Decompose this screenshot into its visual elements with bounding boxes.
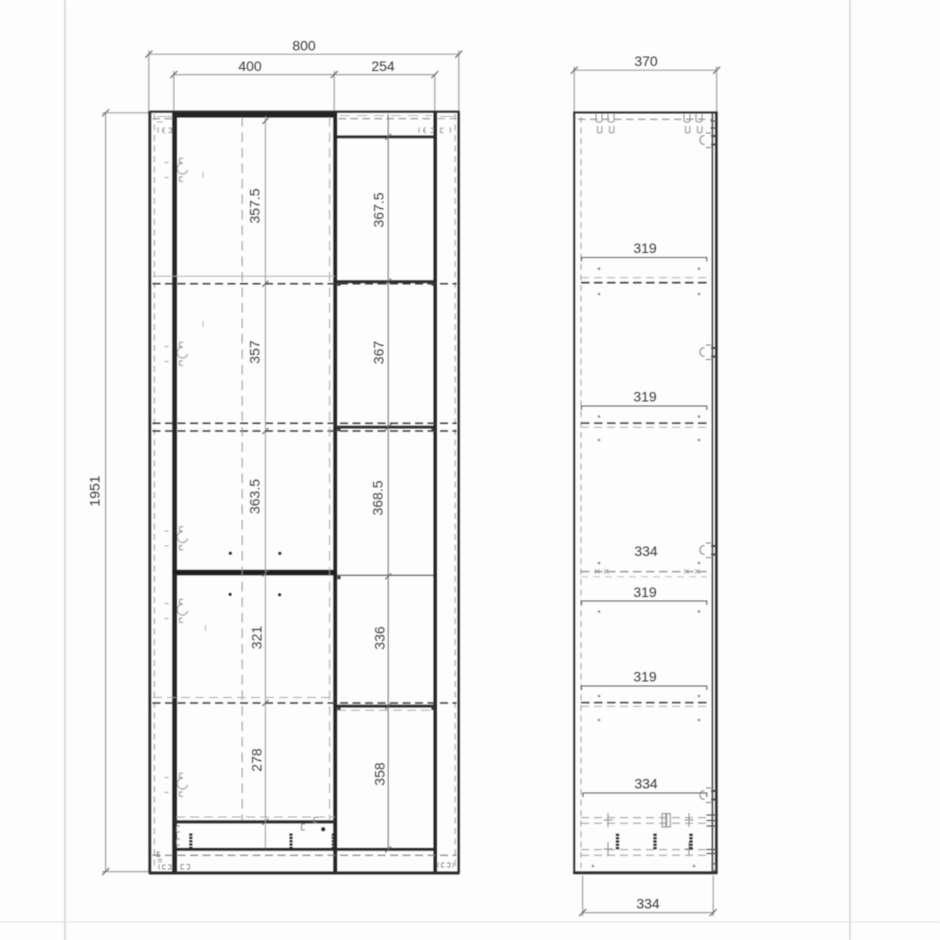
svg-text:367.5: 367.5 [371,192,387,227]
svg-text:319: 319 [633,240,657,256]
svg-text:334: 334 [634,776,658,792]
svg-text:357: 357 [247,340,263,364]
svg-text:334: 334 [634,543,658,559]
svg-text:367: 367 [371,341,387,365]
svg-text:254: 254 [371,58,395,74]
svg-text:334: 334 [636,895,660,911]
svg-text:400: 400 [238,58,262,74]
svg-text:319: 319 [633,584,657,600]
svg-text:800: 800 [292,37,316,53]
svg-text:319: 319 [633,389,657,405]
svg-text:278: 278 [249,748,265,772]
svg-text:357.5: 357.5 [247,188,263,223]
svg-text:370: 370 [634,53,658,69]
svg-text:358: 358 [372,762,388,786]
svg-text:1951: 1951 [87,475,103,506]
svg-text:368.5: 368.5 [370,480,386,515]
svg-text:321: 321 [249,626,265,650]
svg-text:336: 336 [372,626,388,650]
svg-text:363.5: 363.5 [247,479,263,514]
svg-text:319: 319 [633,669,657,685]
